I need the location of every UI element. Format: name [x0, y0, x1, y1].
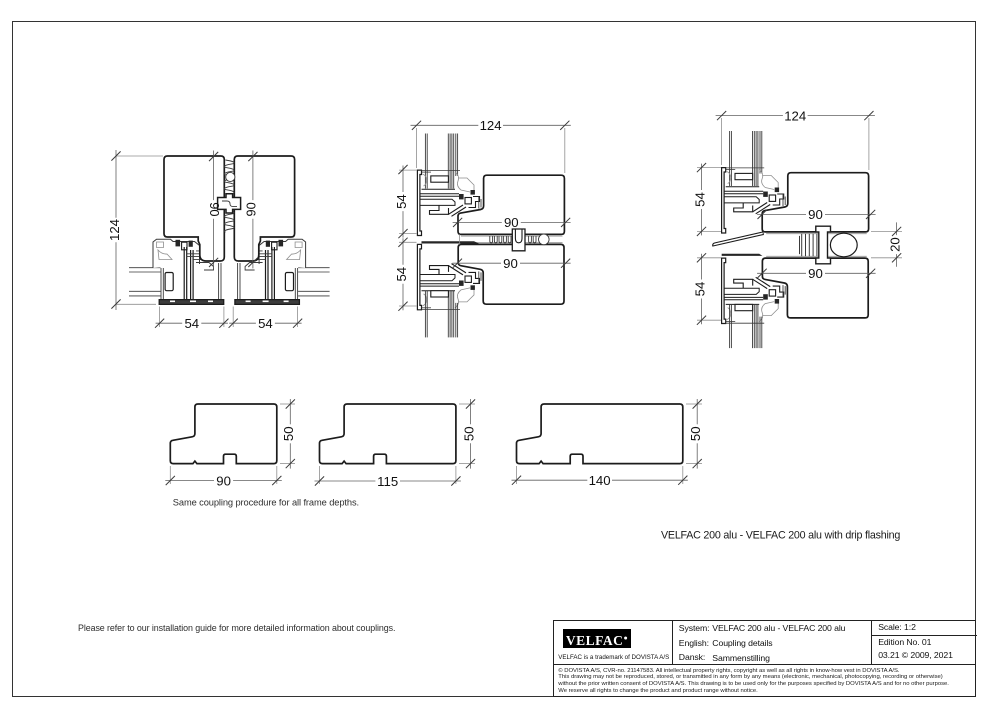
svg-text:90: 90 [216, 473, 231, 488]
svg-text:90: 90 [504, 215, 519, 230]
svg-text:90: 90 [808, 207, 823, 222]
svg-text:54: 54 [692, 192, 707, 207]
svg-text:Same coupling procedure for al: Same coupling procedure for all frame de… [173, 498, 359, 508]
svg-text:124: 124 [784, 108, 806, 123]
svg-text:Please refer to our installati: Please refer to our installation guide f… [78, 623, 395, 633]
svg-text:90: 90 [244, 202, 259, 216]
svg-text:54: 54 [394, 267, 409, 282]
svg-text:20: 20 [888, 237, 903, 252]
svg-text:90: 90 [207, 202, 222, 216]
svg-text:50: 50 [461, 426, 476, 441]
svg-text:124: 124 [107, 219, 122, 241]
svg-text:54: 54 [258, 316, 273, 331]
svg-text:140: 140 [589, 473, 611, 488]
svg-text:VELFAC 200 alu - VELFAC 200 al: VELFAC 200 alu - VELFAC 200 alu with dri… [661, 529, 900, 541]
svg-text:90: 90 [808, 266, 823, 281]
svg-text:115: 115 [377, 474, 398, 489]
svg-text:54: 54 [184, 316, 199, 331]
svg-text:90: 90 [503, 256, 518, 271]
svg-text:54: 54 [692, 282, 707, 297]
svg-text:50: 50 [688, 426, 703, 441]
svg-text:54: 54 [394, 194, 409, 209]
svg-text:124: 124 [480, 118, 502, 133]
svg-text:50: 50 [281, 426, 296, 441]
